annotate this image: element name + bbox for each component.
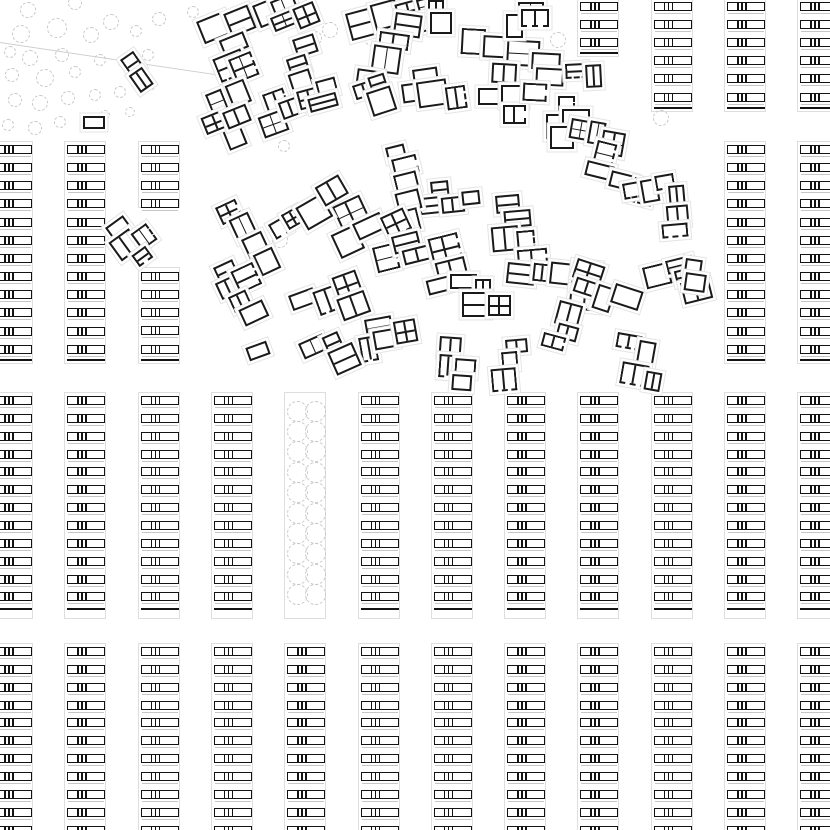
unit-bar — [727, 327, 765, 336]
unit-divider — [232, 647, 234, 656]
unit-divider — [371, 467, 373, 476]
unit-divider — [672, 521, 674, 530]
plot-hairline — [68, 210, 104, 211]
plot-hairline — [728, 13, 764, 14]
unit-divider — [8, 145, 10, 154]
unit-divider — [737, 254, 739, 263]
unit-bar — [654, 485, 692, 494]
unit-divider — [818, 290, 820, 299]
unit-divider — [818, 145, 820, 154]
plot-hairline — [0, 425, 31, 426]
unit-divider — [8, 181, 10, 190]
unit-divider — [224, 521, 226, 530]
unit-bar — [580, 2, 618, 11]
unit-bar — [141, 754, 179, 763]
unit-divider — [371, 450, 373, 459]
unit-divider — [745, 432, 747, 441]
unit-divider — [224, 736, 226, 745]
unit-bar — [67, 683, 105, 692]
unit-divider — [521, 647, 523, 656]
unit-divider — [4, 521, 6, 530]
unit-divider — [741, 181, 743, 190]
unit-bar — [727, 308, 765, 317]
building-room — [610, 283, 644, 311]
unit-divider — [814, 2, 816, 11]
unit-divider — [228, 772, 230, 781]
unit-divider — [444, 772, 446, 781]
unit-divider — [85, 772, 87, 781]
unit-divider — [4, 236, 6, 245]
unit-bar — [434, 683, 472, 692]
unit-divider — [81, 683, 83, 692]
unit-divider — [224, 718, 226, 727]
unit-divider — [741, 665, 743, 674]
unit-divider — [668, 736, 670, 745]
unit-divider — [228, 808, 230, 817]
unit-divider — [810, 218, 812, 227]
unit-divider — [737, 557, 739, 566]
plot-hairline — [728, 783, 764, 784]
unit-bar — [214, 396, 252, 405]
unit-divider — [810, 718, 812, 727]
unit-divider — [12, 808, 14, 817]
unit-divider — [232, 414, 234, 423]
unit-divider — [594, 718, 596, 727]
plot-hairline — [801, 586, 830, 587]
plot-hairline — [508, 658, 544, 659]
unit-divider — [814, 790, 816, 799]
unit-divider — [379, 647, 381, 656]
unit-divider — [594, 2, 596, 11]
unit-bar — [727, 181, 765, 190]
plot-hairline — [728, 85, 764, 86]
unit-divider — [810, 521, 812, 530]
plot-hairline — [801, 407, 830, 408]
unit-divider — [745, 327, 747, 336]
plot-hairline — [728, 319, 764, 320]
plot-hairline — [728, 712, 764, 713]
tree — [61, 91, 75, 105]
unit-divider — [448, 701, 450, 710]
unit-divider — [590, 575, 592, 584]
strip-end-line — [0, 608, 32, 610]
unit-divider — [590, 718, 592, 727]
unit-divider — [737, 74, 739, 83]
unit-divider — [232, 665, 234, 674]
unit-divider — [517, 432, 519, 441]
unit-divider — [297, 826, 299, 830]
plot-hairline — [508, 443, 544, 444]
unit-divider — [521, 539, 523, 548]
plot-hairline — [0, 550, 31, 551]
tree — [94, 54, 106, 66]
unit-bar — [580, 790, 618, 799]
unit-divider — [159, 163, 161, 172]
unit-divider — [155, 181, 157, 190]
unit-divider — [12, 503, 14, 512]
strip-end-line — [727, 359, 765, 361]
unit-bar — [727, 503, 765, 512]
plot-hairline — [68, 603, 104, 604]
unit-divider — [151, 199, 153, 208]
unit-bar — [434, 557, 472, 566]
unit-divider — [297, 772, 299, 781]
unit-divider — [598, 2, 600, 11]
unit-bar — [0, 290, 32, 299]
unit-bar — [434, 414, 472, 423]
unit-divider — [745, 467, 747, 476]
unit-divider — [4, 432, 6, 441]
unit-bar — [580, 20, 618, 29]
unit-bar — [67, 485, 105, 494]
unit-divider — [741, 718, 743, 727]
unit-bar — [580, 485, 618, 494]
unit-divider — [745, 557, 747, 566]
unit-divider — [672, 808, 674, 817]
unit-bar — [434, 808, 472, 817]
unit-divider — [232, 790, 234, 799]
plot-hairline — [655, 801, 691, 802]
unit-divider — [375, 485, 377, 494]
tree — [142, 49, 154, 61]
tree — [68, 0, 82, 10]
plot-hairline — [728, 229, 764, 230]
plot-hairline — [288, 712, 324, 713]
unit-bar — [800, 683, 830, 692]
plot-hairline — [655, 586, 691, 587]
plot-hairline — [0, 283, 31, 284]
unit-divider — [375, 414, 377, 423]
unit-bar — [214, 539, 252, 548]
unit-bar — [727, 557, 765, 566]
unit-divider — [301, 754, 303, 763]
unit-divider — [85, 718, 87, 727]
unit-bar — [67, 236, 105, 245]
unit-divider — [448, 467, 450, 476]
unit-bar — [800, 2, 830, 11]
tree — [83, 27, 99, 43]
unit-divider — [594, 575, 596, 584]
unit-divider — [814, 450, 816, 459]
unit-divider — [814, 485, 816, 494]
unit-divider — [375, 557, 377, 566]
unit-divider — [155, 432, 157, 441]
unit-divider — [301, 736, 303, 745]
building-room — [661, 222, 688, 239]
unit-divider — [741, 345, 743, 354]
unit-divider — [737, 290, 739, 299]
unit-divider — [745, 272, 747, 281]
unit-divider — [594, 790, 596, 799]
unit-divider — [77, 308, 79, 317]
unit-divider — [85, 503, 87, 512]
unit-divider — [672, 665, 674, 674]
unit-bar — [67, 736, 105, 745]
unit-divider — [228, 557, 230, 566]
unit-divider — [810, 539, 812, 548]
unit-bar — [727, 467, 765, 476]
unit-divider — [814, 20, 816, 29]
unit-divider — [77, 754, 79, 763]
unit-divider — [77, 503, 79, 512]
unit-divider — [525, 503, 527, 512]
unit-bar — [0, 683, 32, 692]
unit-bar — [0, 557, 32, 566]
unit-divider — [159, 308, 161, 317]
unit-bar — [580, 467, 618, 476]
unit-divider — [305, 701, 307, 710]
unit-bar — [727, 396, 765, 405]
unit-divider — [375, 432, 377, 441]
plot-hairline — [142, 765, 178, 766]
unit-bar — [727, 450, 765, 459]
unit-divider — [668, 432, 670, 441]
unit-bar — [727, 826, 765, 830]
unit-divider — [594, 450, 596, 459]
unit-divider — [77, 290, 79, 299]
unit-divider — [85, 808, 87, 817]
unit-bar — [580, 592, 618, 601]
unit-divider — [8, 539, 10, 548]
unit-divider — [375, 772, 377, 781]
unit-bar — [67, 272, 105, 281]
unit-divider — [452, 432, 454, 441]
unit-divider — [741, 236, 743, 245]
unit-divider — [810, 2, 812, 11]
unit-divider — [668, 592, 670, 601]
unit-divider — [814, 345, 816, 354]
plot-hairline — [215, 694, 251, 695]
plot-hairline — [728, 729, 764, 730]
unit-bar — [141, 592, 179, 601]
unit-bar — [214, 647, 252, 656]
unit-divider — [590, 557, 592, 566]
unit-divider — [379, 414, 381, 423]
unit-divider — [155, 772, 157, 781]
unit-divider — [818, 736, 820, 745]
unit-bar — [141, 163, 179, 172]
unit-bar — [141, 485, 179, 494]
plot-hairline — [0, 532, 31, 533]
unit-divider — [85, 450, 87, 459]
unit-divider — [151, 647, 153, 656]
unit-divider — [77, 808, 79, 817]
unit-divider — [818, 345, 820, 354]
plot-hairline — [288, 801, 324, 802]
unit-divider — [232, 485, 234, 494]
unit-divider — [232, 592, 234, 601]
strip-end-line — [654, 107, 692, 109]
unit-divider — [814, 74, 816, 83]
unit-divider — [85, 414, 87, 423]
unit-divider — [379, 808, 381, 817]
unit-divider — [452, 503, 454, 512]
unit-divider — [668, 772, 670, 781]
plot-hairline — [801, 192, 830, 193]
unit-bar — [507, 592, 545, 601]
unit-divider — [305, 683, 307, 692]
plot-hairline — [362, 747, 398, 748]
unit-divider — [525, 450, 527, 459]
plot-hairline — [215, 676, 251, 677]
unit-divider — [8, 808, 10, 817]
unit-divider — [668, 647, 670, 656]
unit-bar — [214, 575, 252, 584]
unit-divider — [155, 290, 157, 299]
unit-divider — [77, 736, 79, 745]
unit-divider — [81, 450, 83, 459]
unit-bar — [0, 736, 32, 745]
unit-bar — [800, 396, 830, 405]
unit-divider — [668, 93, 670, 102]
unit-bar — [654, 754, 692, 763]
unit-divider — [4, 145, 6, 154]
unit-bar — [580, 718, 618, 727]
unit-divider — [590, 485, 592, 494]
unit-bar — [0, 236, 32, 245]
unit-bar — [800, 521, 830, 530]
unit-divider — [379, 557, 381, 566]
unit-bar — [800, 701, 830, 710]
unit-divider — [668, 665, 670, 674]
unit-divider — [664, 683, 666, 692]
tree — [322, 22, 338, 38]
unit-divider — [737, 414, 739, 423]
unit-divider — [598, 592, 600, 601]
unit-divider — [151, 432, 153, 441]
unit-divider — [159, 754, 161, 763]
plot-hairline — [362, 765, 398, 766]
unit-divider — [810, 575, 812, 584]
unit-divider — [672, 826, 674, 830]
plot-hairline — [508, 819, 544, 820]
unit-divider — [590, 20, 592, 29]
unit-bar — [727, 74, 765, 83]
unit-divider — [737, 701, 739, 710]
housing-strip — [797, 392, 830, 619]
unit-divider — [448, 826, 450, 830]
unit-divider — [737, 647, 739, 656]
unit-divider — [8, 218, 10, 227]
unit-divider — [379, 772, 381, 781]
plot-hairline — [362, 568, 398, 569]
unit-divider — [814, 327, 816, 336]
plot-hairline — [581, 514, 617, 515]
plot-hairline — [655, 819, 691, 820]
unit-divider — [525, 701, 527, 710]
unit-divider — [517, 592, 519, 601]
unit-divider — [668, 467, 670, 476]
unit-divider — [741, 254, 743, 263]
plot-hairline — [581, 747, 617, 748]
unit-divider — [664, 592, 666, 601]
unit-divider — [81, 772, 83, 781]
unit-divider — [814, 592, 816, 601]
unit-divider — [305, 772, 307, 781]
plot-hairline — [215, 514, 251, 515]
unit-divider — [4, 218, 6, 227]
unit-divider — [155, 665, 157, 674]
unit-bar — [361, 521, 399, 530]
housing-strip — [138, 267, 180, 364]
plot-hairline — [728, 550, 764, 551]
unit-bar — [141, 432, 179, 441]
unit-bar — [141, 199, 179, 208]
unit-divider — [4, 683, 6, 692]
unit-divider — [818, 450, 820, 459]
unit-divider — [598, 718, 600, 727]
unit-divider — [151, 308, 153, 317]
unit-bar — [800, 163, 830, 172]
unit-divider — [598, 754, 600, 763]
unit-divider — [668, 826, 670, 830]
unit-divider — [155, 145, 157, 154]
unit-divider — [810, 414, 812, 423]
unit-bar — [141, 290, 179, 299]
unit-divider — [151, 772, 153, 781]
unit-divider — [672, 701, 674, 710]
plot-hairline — [801, 801, 830, 802]
unit-divider — [85, 145, 87, 154]
unit-divider — [814, 272, 816, 281]
unit-divider — [228, 754, 230, 763]
unit-divider — [371, 683, 373, 692]
unit-divider — [741, 432, 743, 441]
unit-divider — [8, 701, 10, 710]
unit-bar — [654, 93, 692, 102]
plot-hairline — [801, 461, 830, 462]
unit-divider — [375, 683, 377, 692]
unit-divider — [672, 56, 674, 65]
unit-divider — [8, 521, 10, 530]
housing-strip — [577, 392, 619, 619]
unit-divider — [151, 683, 153, 692]
unit-divider — [81, 414, 83, 423]
unit-divider — [155, 575, 157, 584]
unit-bar — [287, 808, 325, 817]
unit-divider — [737, 327, 739, 336]
unit-divider — [155, 163, 157, 172]
unit-divider — [305, 718, 307, 727]
unit-bar — [654, 467, 692, 476]
unit-divider — [810, 396, 812, 405]
plot-hairline — [728, 301, 764, 302]
unit-divider — [232, 539, 234, 548]
unit-divider — [672, 74, 674, 83]
unit-bar — [141, 701, 179, 710]
unit-divider — [85, 199, 87, 208]
plot-hairline — [728, 603, 764, 604]
unit-bar — [507, 736, 545, 745]
building-room — [461, 189, 480, 205]
unit-divider — [375, 450, 377, 459]
unit-divider — [814, 467, 816, 476]
plot-hairline — [801, 478, 830, 479]
unit-divider — [4, 308, 6, 317]
unit-divider — [818, 521, 820, 530]
plot-hairline — [655, 765, 691, 766]
unit-divider — [814, 414, 816, 423]
unit-divider — [77, 467, 79, 476]
unit-divider — [664, 38, 666, 47]
unit-divider — [379, 665, 381, 674]
unit-divider — [590, 754, 592, 763]
unit-divider — [444, 557, 446, 566]
unit-divider — [598, 396, 600, 405]
unit-divider — [301, 665, 303, 674]
unit-divider — [228, 503, 230, 512]
plot-hairline — [581, 586, 617, 587]
